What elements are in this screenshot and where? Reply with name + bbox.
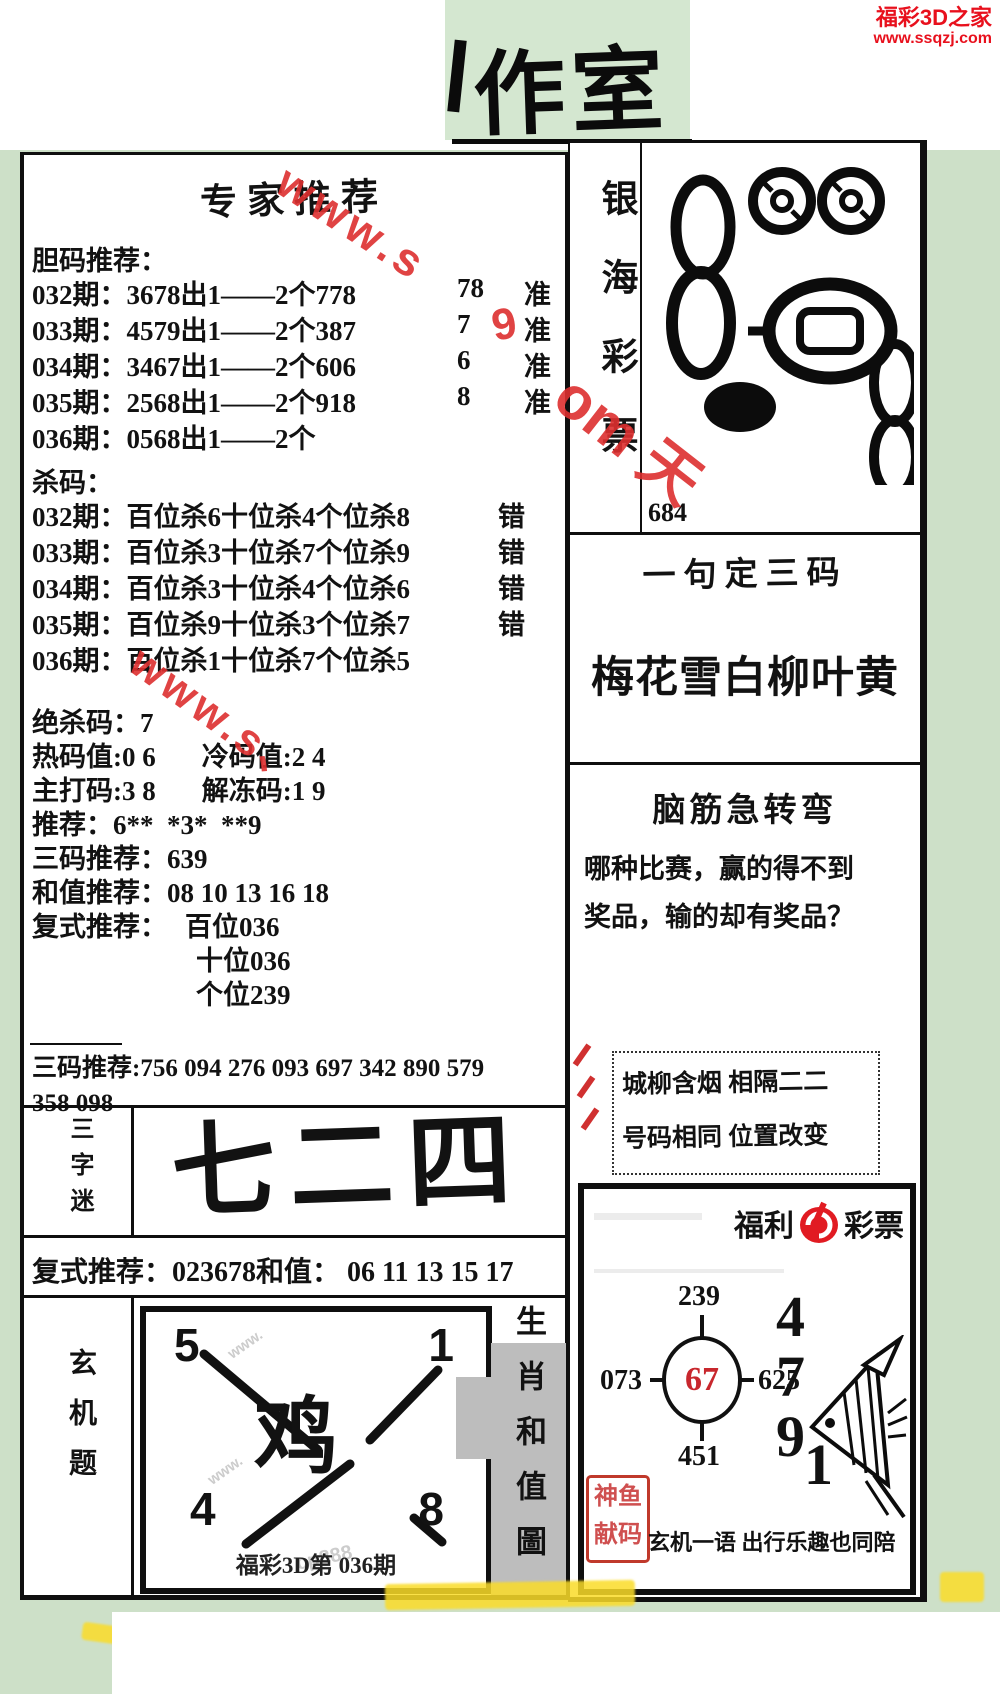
corner-number-tr: 1: [428, 1318, 454, 1372]
danma-row: 033期：4579出1——2个387 7 准: [32, 309, 562, 345]
corner-number-bl: 4: [190, 1482, 216, 1536]
result-flag: 准: [524, 345, 551, 384]
result-flag: 准: [524, 309, 551, 348]
result-flag: 错: [498, 567, 525, 606]
danma-row: 034期：3467出1——2个606 6 准: [32, 345, 562, 381]
right-column: 银海彩票 684 一句定: [568, 140, 927, 1602]
masthead-block: 作室: [445, 0, 690, 140]
hit-digit: 6: [457, 345, 471, 376]
brand-right: 彩票: [844, 1201, 904, 1245]
redacted-strip: [594, 1213, 702, 1220]
big-digit: 7: [776, 1349, 805, 1405]
hit-digit: 8: [457, 381, 471, 412]
card-slogan: 玄机一语 出行乐趣也同陪: [648, 1525, 896, 1557]
cross-left: 073: [600, 1365, 642, 1397]
riddle-line-1: 哪种比赛，赢的得不到: [584, 847, 854, 886]
redacted-strip: [594, 1269, 784, 1273]
diagram-caption: 福彩3D第 036期: [146, 1546, 486, 1580]
result-flag: 错: [498, 603, 525, 642]
period: 032期：: [32, 502, 127, 532]
fucai-card: 福利 彩票 239 073 67 625: [578, 1183, 916, 1595]
cross-bottom: 451: [678, 1441, 720, 1473]
period: 036期：: [32, 424, 127, 454]
result-flag: 准: [524, 273, 551, 312]
yiju-phrase: 梅花雪白柳叶黄: [570, 643, 920, 705]
result-flag: 错: [498, 495, 525, 534]
fucai-brand: 福利 彩票: [734, 1201, 904, 1245]
period: 033期：: [32, 538, 127, 568]
watermark-yellow: [940, 1572, 984, 1602]
corner-number-br: 8: [418, 1482, 444, 1536]
prediction: 3678出1——2个778: [127, 280, 357, 310]
cross-top: 239: [678, 1281, 720, 1313]
kill-prediction: 百位杀6十位杀4个位杀8: [127, 502, 411, 532]
xuanji-cell: 玄机题: [24, 1298, 134, 1600]
prediction: 0568出1——2个: [127, 424, 316, 454]
bottom-blank-area: [112, 1612, 1000, 1694]
zodiac-sum-chart-label: 生肖和值圖: [506, 1305, 551, 1580]
riddle-line-2: 奖品，输的却有奖品？: [584, 895, 854, 934]
period: 034期：: [32, 352, 127, 382]
yiju-title: 一句定三码: [570, 544, 921, 598]
expert-panel: 专家推荐 胆码推荐： 032期：3678出1——2个778 78 准 033期：…: [20, 152, 568, 1600]
period: 033期：: [32, 316, 127, 346]
fushi2-line: 复式推荐：023678和值： 06 11 13 15 17: [32, 1250, 513, 1290]
danma-row: 035期：2568出1——2个918 8 准: [32, 381, 562, 417]
kill-prediction: 百位杀9十位杀3个位杀7: [127, 610, 411, 640]
hit-digit: 7: [457, 309, 471, 340]
shama-row: 036期：百位杀1十位杀7个位杀5: [32, 639, 562, 675]
naojin-title: 脑筋急转弯: [570, 783, 920, 831]
stamp-line-1: 神鱼: [589, 1478, 647, 1516]
divider: [24, 1235, 565, 1238]
fushi-ge: 个位239: [196, 973, 291, 1012]
result-flag: 错: [498, 531, 525, 570]
kill-prediction: 百位杀3十位杀7个位杀9: [127, 538, 411, 568]
site-badge: 福彩3D之家 www.ssqzj.com: [873, 6, 992, 48]
period: 036期：: [32, 646, 127, 676]
sanzimi-cell: 三字迷: [24, 1108, 134, 1235]
zodiac-character: 鸡: [254, 1370, 338, 1491]
watermark-yellow: [385, 1580, 635, 1610]
prediction: 4579出1——2个387: [127, 316, 357, 346]
scanned-lottery-sheet: 作室 福彩3D之家 www.ssqzj.com 专家推荐 胆码推荐： 032期：…: [0, 0, 1000, 1694]
cross-center: 67: [676, 1361, 728, 1399]
chengliu-line-1: 城柳含烟 相隔二二: [622, 1061, 829, 1101]
fucai-lottery-logo-icon: [794, 1201, 844, 1245]
prediction: 3467出1——2个606: [127, 352, 357, 382]
stamp-line-2: 献码: [589, 1516, 647, 1554]
yiju-section: 一句定三码 梅花雪白柳叶黄: [570, 535, 920, 765]
brand-left: 福利: [734, 1201, 794, 1245]
kill-prediction: 百位杀3十位杀4个位杀6: [127, 574, 411, 604]
shama-row: 035期：百位杀9十位杀3个位杀7 错: [32, 603, 562, 639]
chengliu-box: 城柳含烟 相隔二二 号码相同 位置改变: [612, 1051, 880, 1175]
masthead-title: 作室: [471, 15, 672, 155]
masthead-partial-stroke: [447, 40, 466, 113]
hit-digit: 78: [457, 273, 484, 304]
shama-row: 033期：百位杀3十位杀7个位杀9 错: [32, 531, 562, 567]
gray-block-small: [456, 1377, 492, 1459]
danma-row: 036期：0568出1——2个: [32, 417, 562, 453]
site-url: www.ssqzj.com: [873, 30, 992, 48]
site-name: 福彩3D之家: [873, 6, 992, 30]
xuanji-diagram: 5 1 4 8 鸡 www. www. cp888 福彩3D第 036期: [140, 1306, 492, 1594]
period: 035期：: [32, 610, 127, 640]
period: 034期：: [32, 574, 127, 604]
chengliu-line-2: 号码相同 位置改变: [622, 1115, 829, 1155]
sanzimi-label: 三字迷: [62, 1116, 97, 1224]
corner-number-tl: 5: [174, 1318, 200, 1372]
danma-row: 032期：3678出1——2个778 78 准: [32, 273, 562, 309]
prediction: 2568出1——2个918: [127, 388, 357, 418]
shenyu-stamp: 神鱼 献码: [586, 1475, 650, 1563]
short-rule: [30, 1043, 122, 1045]
fish-drawing: [804, 1335, 908, 1521]
shama-row: 034期：百位杀3十位杀4个位杀6 错: [32, 567, 562, 603]
shama-row: 032期：百位杀6十位杀4个位杀8 错: [32, 495, 562, 531]
xuanji-label: 玄机题: [60, 1348, 100, 1498]
sanzimi-answer: 七二四: [134, 1096, 563, 1241]
big-digit: 9: [776, 1409, 805, 1465]
period: 035期：: [32, 388, 127, 418]
period: 032期：: [32, 280, 127, 310]
big-digit: 4: [776, 1289, 805, 1345]
